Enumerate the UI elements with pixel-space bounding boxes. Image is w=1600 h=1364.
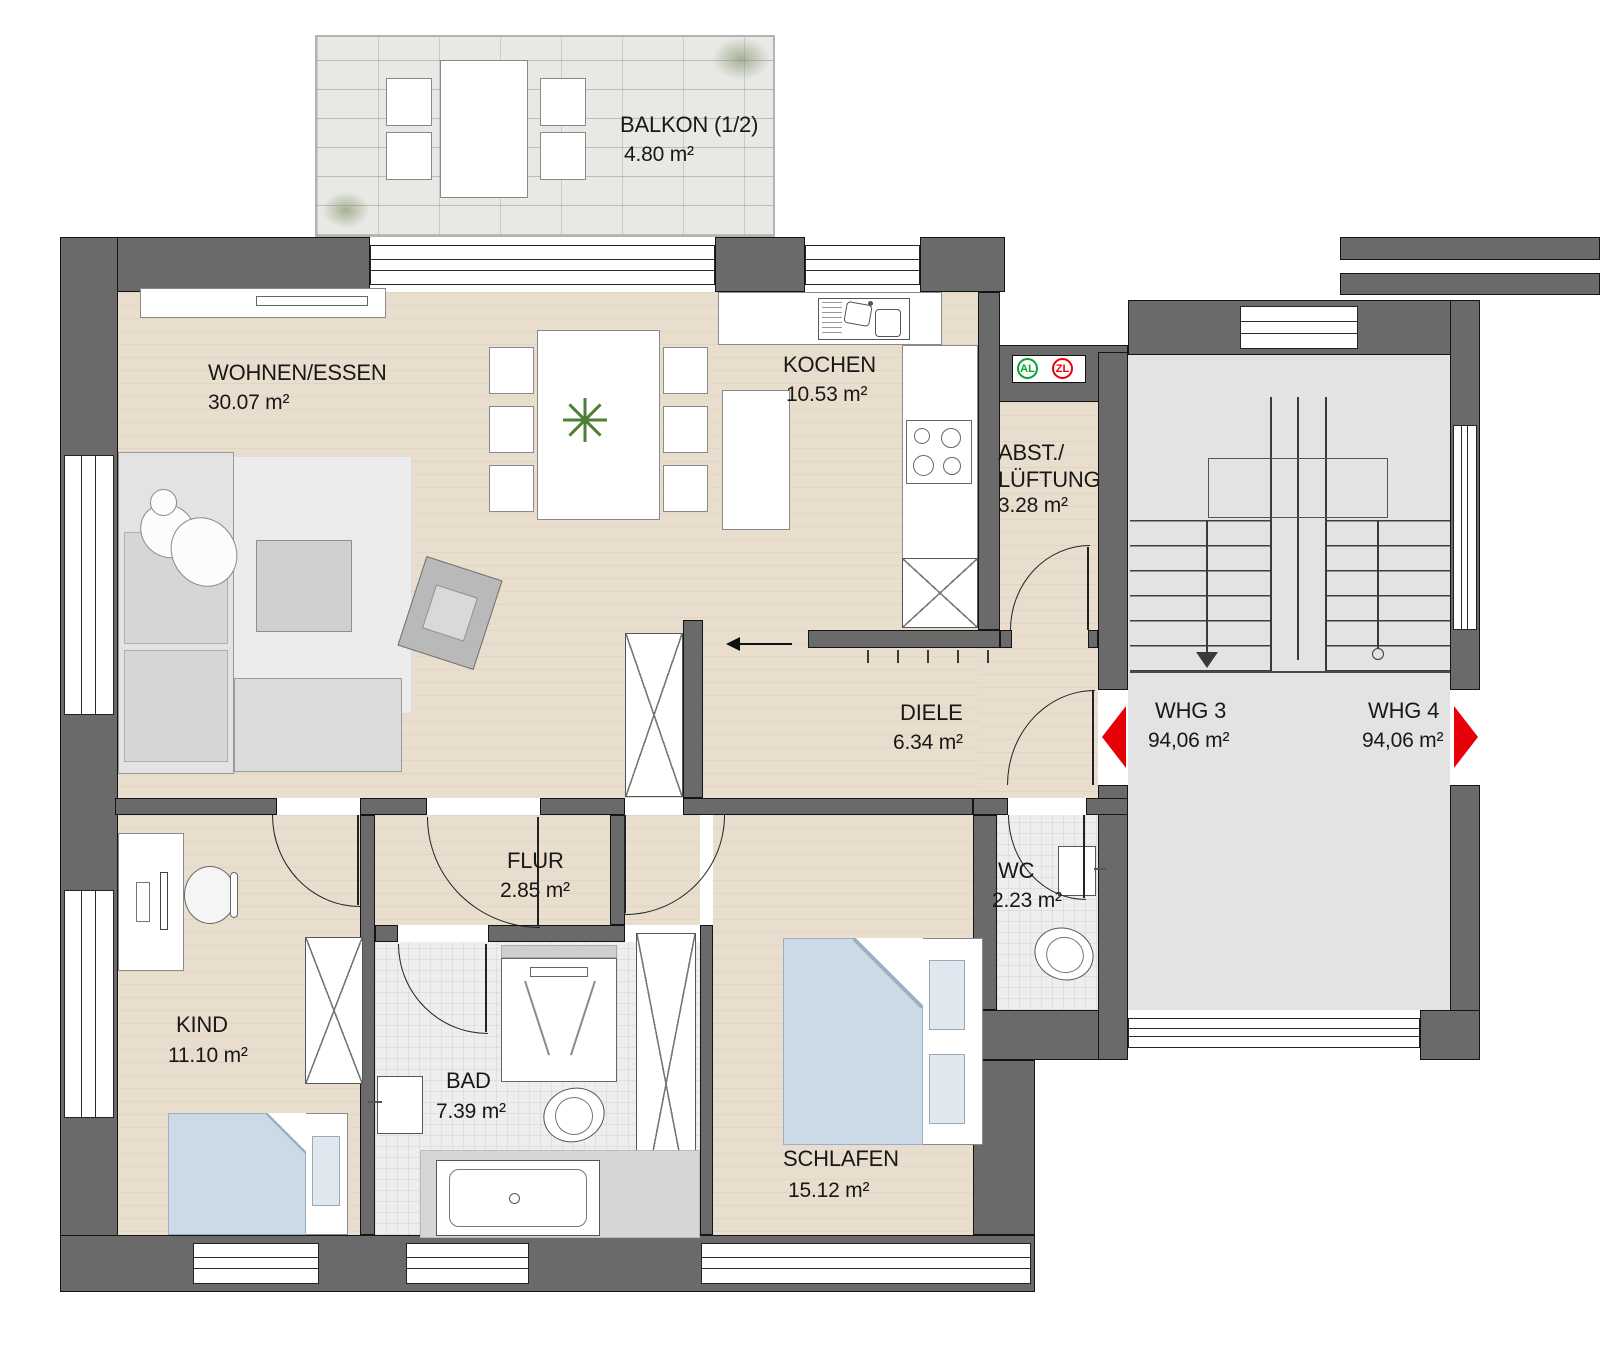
room-area-diele: 6.34 m² <box>893 731 963 755</box>
burner <box>941 428 961 448</box>
dining-chair <box>489 465 534 512</box>
apartment-area-whg3: 94,06 m² <box>1148 729 1229 753</box>
fridge-unit <box>902 558 978 628</box>
wall <box>610 815 625 925</box>
apartment-label-whg3: WHG 3 <box>1155 698 1226 724</box>
floor-plan: AL ZL <box>0 0 1600 1364</box>
room-area-wc: 2.23 m² <box>992 889 1062 913</box>
room-area-flur: 2.85 m² <box>500 879 570 903</box>
room-area-schlafen: 15.12 m² <box>788 1179 869 1203</box>
wall <box>1088 630 1098 648</box>
wall <box>115 798 277 815</box>
kind-bed-pillow <box>312 1136 340 1206</box>
door-leaf <box>624 815 626 913</box>
room-area-wohnen: 30.07 m² <box>208 391 289 415</box>
sink-drainer <box>822 302 842 336</box>
apartment-area-whg4: 94,06 m² <box>1362 729 1443 753</box>
stair-flight-up <box>1327 520 1450 672</box>
kind-south-window <box>193 1243 319 1284</box>
coat-hook <box>897 650 899 663</box>
hall-wardrobe <box>625 633 683 797</box>
wall <box>540 798 625 815</box>
office-chair <box>184 866 236 924</box>
balcony-chair <box>540 78 586 126</box>
balcony-chair <box>540 132 586 180</box>
tv <box>256 296 368 306</box>
sink-basin <box>875 309 901 337</box>
balcony-chair <box>386 78 432 126</box>
balcony-table <box>440 60 528 198</box>
apartment-label-whg4: WHG 4 <box>1368 698 1439 724</box>
room-label-wc: WC <box>998 858 1034 884</box>
bed-pillow <box>929 960 965 1030</box>
side-table-top <box>422 584 478 641</box>
balcony-chair <box>386 132 432 180</box>
room-label-flur: FLUR <box>507 848 564 874</box>
floor-stairwell <box>1128 355 1450 1010</box>
kitchen-sink <box>818 298 910 340</box>
room-area-bad: 7.39 m² <box>436 1100 506 1124</box>
wall <box>683 620 703 798</box>
room-label-diele: DIELE <box>900 700 963 726</box>
wall <box>488 925 625 942</box>
bad-sink-faucet <box>368 1101 382 1103</box>
bad-sink <box>377 1076 423 1134</box>
room-label-schlafen: SCHLAFEN <box>783 1146 899 1172</box>
door-arc-schlafen <box>625 815 725 915</box>
shower-ledge <box>501 945 617 958</box>
room-label-bad: BAD <box>446 1068 491 1094</box>
exhaust-air-badge: ZL <box>1052 358 1073 379</box>
burner <box>914 428 930 444</box>
kind-window <box>64 890 114 1118</box>
office-chair-back <box>230 872 238 918</box>
kitchen-window <box>805 245 920 285</box>
shower-spray <box>524 981 550 1056</box>
wall <box>683 798 973 815</box>
sink-faucet <box>868 301 873 306</box>
wall <box>700 925 713 1235</box>
wall <box>1340 237 1600 260</box>
person-head <box>150 489 177 516</box>
balcony-plant-patch <box>322 192 370 228</box>
supply-air-badge: AL <box>1017 358 1038 379</box>
burner <box>943 457 961 475</box>
wall <box>1340 273 1600 295</box>
dining-chair <box>663 465 708 512</box>
living-window <box>64 455 114 715</box>
entry-arrow-line <box>740 643 792 645</box>
room-label-wohnen: WOHNEN/ESSEN <box>208 360 387 386</box>
desk-keyboard <box>136 882 150 922</box>
wall <box>1000 630 1012 648</box>
bathtub <box>436 1160 600 1236</box>
room-label-kind: KIND <box>176 1012 228 1038</box>
room-area-balkon: 4.80 m² <box>624 143 694 167</box>
stair-walkline <box>1206 520 1208 655</box>
bad-south-window <box>406 1243 529 1284</box>
stair-spine <box>1325 397 1327 672</box>
stair-down-arrow <box>1196 652 1218 668</box>
wall <box>808 630 1000 648</box>
kind-bed-fold <box>266 1113 306 1153</box>
coat-hook <box>987 650 989 663</box>
wall <box>1098 352 1128 690</box>
stairwell-east-window <box>1453 425 1477 630</box>
whg3-entrance-arrow-icon <box>1102 706 1126 768</box>
bathtub-drain <box>509 1193 520 1204</box>
balcony-plant-patch <box>712 38 770 80</box>
wall <box>920 237 1005 292</box>
bed-pillow <box>929 1054 965 1124</box>
wall <box>973 798 1008 815</box>
door-leaf <box>1083 815 1085 898</box>
coat-hook <box>867 650 869 663</box>
entry-arrow-head <box>726 637 740 651</box>
stair-rail-outline <box>1208 458 1388 518</box>
sofa-cushion <box>124 650 228 762</box>
room-label-kochen: KOCHEN <box>783 352 876 378</box>
coffee-table <box>256 540 352 632</box>
kitchen-island <box>722 390 790 530</box>
stair-walkline <box>1377 520 1379 650</box>
dining-chair <box>489 347 534 394</box>
stair-flight-down <box>1130 520 1270 672</box>
room-label-balkon: BALKON (1/2) <box>620 112 758 138</box>
stair-spine <box>1270 397 1272 672</box>
room-area-kochen: 10.53 m² <box>786 383 867 407</box>
wall <box>1098 785 1128 1060</box>
stove <box>906 420 972 484</box>
schlafen-south-window <box>701 1243 1031 1284</box>
shower-head-bar <box>530 967 588 977</box>
whg4-entrance-arrow-icon <box>1454 706 1478 768</box>
door-leaf <box>1092 690 1094 785</box>
bed-blanket-fold <box>853 938 923 1008</box>
wall <box>360 798 427 815</box>
door-leaf <box>1087 547 1089 630</box>
door-leaf <box>485 944 487 1032</box>
room-label-abst-1: ABST./ <box>998 440 1064 466</box>
landing-window <box>1128 1018 1420 1048</box>
coat-hook <box>957 650 959 663</box>
dining-chair <box>663 406 708 453</box>
wc-sink-faucet <box>1094 868 1106 870</box>
stair-walkline-start <box>1372 648 1384 660</box>
room-area-abst: 3.28 m² <box>998 494 1068 518</box>
sofa-chaise <box>234 678 402 772</box>
stair-spine <box>1297 397 1299 660</box>
shower <box>501 958 617 1082</box>
wall <box>1086 798 1128 815</box>
landing-edge-line <box>1130 671 1450 673</box>
wall <box>375 925 398 942</box>
stairwell-window <box>1240 306 1358 349</box>
wall <box>978 292 1000 630</box>
kind-wardrobe <box>305 937 363 1084</box>
burner <box>913 455 934 476</box>
room-area-kind: 11.10 m² <box>168 1044 248 1068</box>
dining-chair <box>489 406 534 453</box>
dining-chair <box>663 347 708 394</box>
plant-icon <box>563 398 607 442</box>
desk <box>118 833 184 971</box>
room-label-abst-2: LÜFTUNG <box>998 467 1101 493</box>
wall <box>715 237 805 292</box>
desk-monitor <box>160 872 168 930</box>
balcony-sliding-door <box>370 245 715 285</box>
wall <box>1420 1010 1480 1060</box>
coat-hook <box>927 650 929 663</box>
shower-spray <box>570 981 596 1056</box>
door-leaf <box>357 815 359 905</box>
